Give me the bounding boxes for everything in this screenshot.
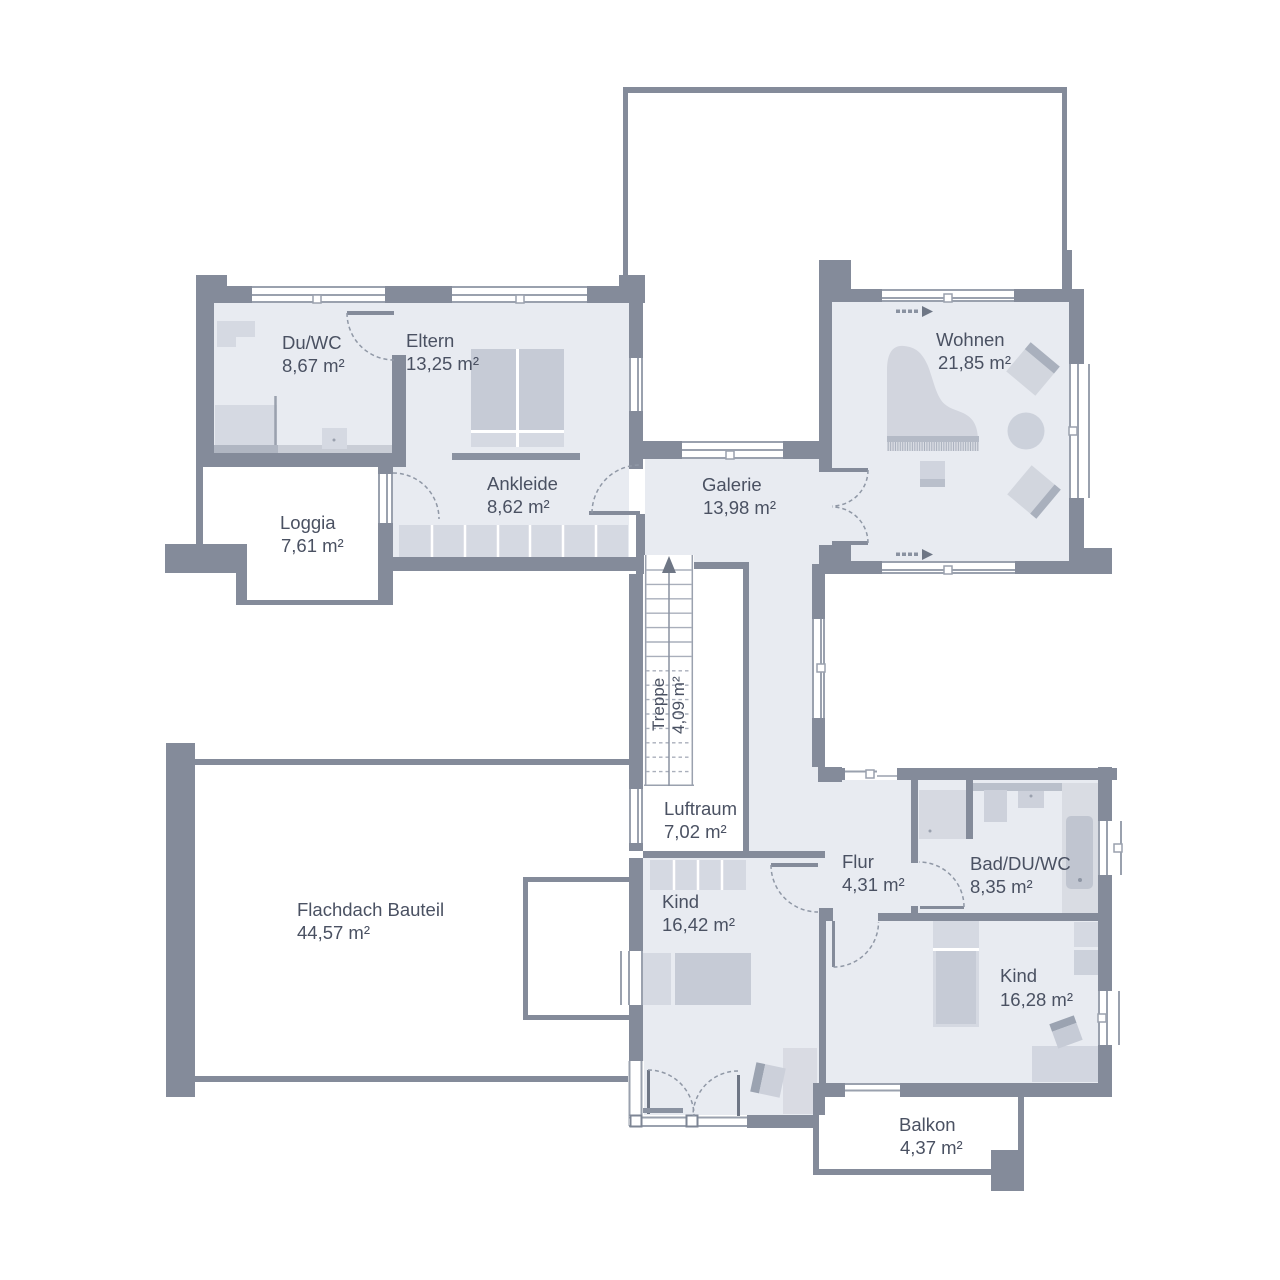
svg-text:Flur: Flur xyxy=(842,851,874,872)
svg-text:8,62 m²: 8,62 m² xyxy=(487,496,550,517)
svg-text:44,57 m²: 44,57 m² xyxy=(297,922,370,943)
svg-text:Eltern: Eltern xyxy=(406,330,454,351)
svg-text:Flachdach Bauteil: Flachdach Bauteil xyxy=(297,899,444,920)
svg-text:8,67 m²: 8,67 m² xyxy=(282,355,345,376)
svg-text:Treppe: Treppe xyxy=(649,678,668,731)
svg-text:Bad/DU/WC: Bad/DU/WC xyxy=(970,853,1071,874)
svg-text:Du/WC: Du/WC xyxy=(282,332,342,353)
svg-text:13,25 m²: 13,25 m² xyxy=(406,353,479,374)
svg-text:4,37 m²: 4,37 m² xyxy=(900,1137,963,1158)
svg-text:16,28 m²: 16,28 m² xyxy=(1000,989,1073,1010)
svg-text:7,61 m²: 7,61 m² xyxy=(281,535,344,556)
svg-text:Luftraum: Luftraum xyxy=(664,798,737,819)
svg-text:Ankleide: Ankleide xyxy=(487,473,558,494)
svg-text:Balkon: Balkon xyxy=(899,1114,956,1135)
svg-text:Kind: Kind xyxy=(1000,965,1037,986)
svg-text:13,98 m²: 13,98 m² xyxy=(703,497,776,518)
svg-text:Loggia: Loggia xyxy=(280,512,336,533)
svg-text:Galerie: Galerie xyxy=(702,474,762,495)
svg-text:Kind: Kind xyxy=(662,891,699,912)
svg-text:8,35 m²: 8,35 m² xyxy=(970,876,1033,897)
svg-text:21,85 m²: 21,85 m² xyxy=(938,352,1011,373)
svg-text:16,42 m²: 16,42 m² xyxy=(662,914,735,935)
svg-text:4,09 m²: 4,09 m² xyxy=(669,676,688,734)
svg-text:Wohnen: Wohnen xyxy=(936,329,1005,350)
svg-text:4,31 m²: 4,31 m² xyxy=(842,874,905,895)
svg-text:7,02 m²: 7,02 m² xyxy=(664,821,727,842)
